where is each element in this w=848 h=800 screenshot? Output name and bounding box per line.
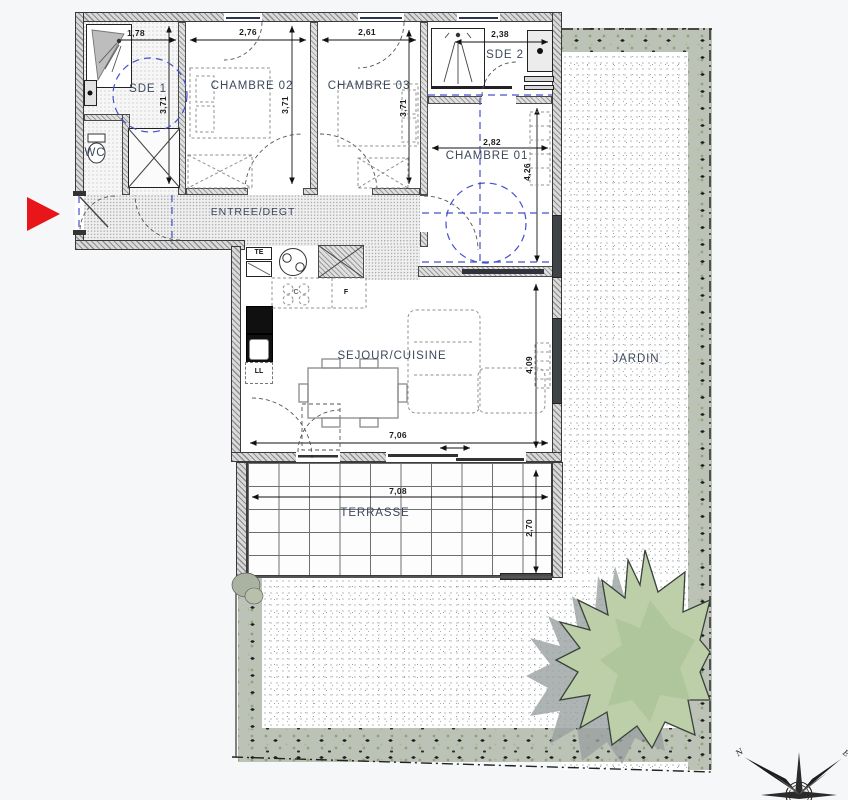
terrasse-tiles (247, 462, 552, 576)
garden-border-right (688, 28, 712, 770)
garden-border-bottom (238, 728, 700, 762)
room-label-terrasse: TERRASSE (315, 507, 435, 519)
door-jamb (73, 191, 86, 196)
sde2-towel-bar (524, 76, 554, 82)
window-glazing (360, 17, 401, 19)
wall-entry-bottom (75, 240, 245, 250)
dim-terrasse-width: 7,08 (378, 486, 418, 496)
dim-chambre03-height: 3,71 (398, 88, 408, 128)
window-glazing (226, 17, 260, 19)
wall-terrasse-left (236, 462, 247, 576)
wall-sejour-left (231, 246, 241, 456)
dim-sde1-height: 3,71 (158, 85, 168, 125)
dim-chambre02-width: 2,76 (228, 27, 268, 37)
chambre02-floor (186, 22, 310, 195)
sde1-duct-box (128, 128, 180, 188)
window-chambre01-dark (552, 215, 562, 278)
label-cooktop: C (290, 289, 302, 296)
dim-chambre03-width: 2,61 (347, 27, 387, 37)
garden-border-left (238, 578, 262, 730)
sejour-window-opening (296, 452, 340, 462)
sliding-bay-opening (386, 452, 526, 462)
compass-rose (742, 752, 844, 800)
interior-sliding-door-dark (462, 269, 544, 274)
window-chambre02 (224, 12, 262, 22)
chambre01-door-opening (420, 196, 428, 232)
entry-door-opening (75, 196, 84, 230)
room-label-chambre02: CHAMBRE 02 (192, 80, 312, 92)
dim-sejour-height: 4,09 (524, 345, 534, 385)
window-glazing (459, 17, 498, 19)
compass-north-label: N (734, 747, 745, 758)
room-label-sde1: SDE 1 (108, 83, 188, 95)
wall-chambre03-bottom (372, 188, 420, 195)
room-label-wc: WC (75, 147, 115, 159)
dim-sde2-width: 2,38 (480, 29, 520, 39)
kitchen-passage-floor (365, 246, 420, 280)
sde2-door-opening (482, 96, 516, 104)
wall-terrasse-right (552, 462, 563, 578)
wall-chambre02-bottom-left (186, 188, 248, 195)
room-label-entree: ENTREE/DEGT (193, 206, 313, 218)
kitchen-duct-box (318, 245, 364, 278)
sde1-washbasin (84, 80, 97, 106)
door-jamb (73, 230, 86, 235)
sde2-towel-bar (524, 85, 554, 90)
room-label-sde2: SDE 2 (475, 49, 535, 61)
compass-east-label: E (841, 748, 848, 759)
room-label-chambre03: CHAMBRE 03 (309, 80, 429, 92)
sde2-shower-screen (431, 86, 512, 89)
dim-chambre01-width: 2,82 (472, 137, 512, 147)
dim-terrasse-height: 2,70 (524, 508, 534, 548)
room-label-sejour: SEJOUR/CUISINE (322, 350, 462, 362)
dim-sejour-width: 7,06 (378, 430, 418, 440)
window-chambre03 (358, 12, 404, 22)
entrance-arrow (27, 197, 60, 231)
window-sde2 (457, 12, 500, 22)
wall-chambre02-03 (310, 22, 318, 195)
kitchen-counter-dark (246, 306, 273, 334)
kitchen-sink-bowl (249, 339, 269, 360)
wall-chambre03-right (420, 22, 428, 195)
chambre01-floor (428, 104, 552, 266)
dim-chambre02-height: 3,71 (280, 85, 290, 125)
terrasse-edge-line (247, 576, 552, 578)
window-sejour-dark (552, 318, 562, 404)
room-label-jardin: JARDIN (576, 353, 696, 365)
entree-floor (84, 195, 420, 246)
kitchen-oven (246, 261, 272, 277)
dim-chambre01-height: 4,26 (522, 152, 532, 192)
label-fridge: F (340, 289, 352, 296)
garden-gravel-bottom (262, 578, 688, 730)
dim-sde1-width: 1,78 (116, 28, 156, 38)
floor-plan: SDE 1 CHAMBRE 02 CHAMBRE 03 SDE 2 CHAMBR… (0, 0, 848, 800)
wall-chambre02-bottom-right (303, 188, 318, 195)
label-washer: LL (248, 368, 270, 375)
label-electrical-panel: TE (246, 249, 272, 256)
